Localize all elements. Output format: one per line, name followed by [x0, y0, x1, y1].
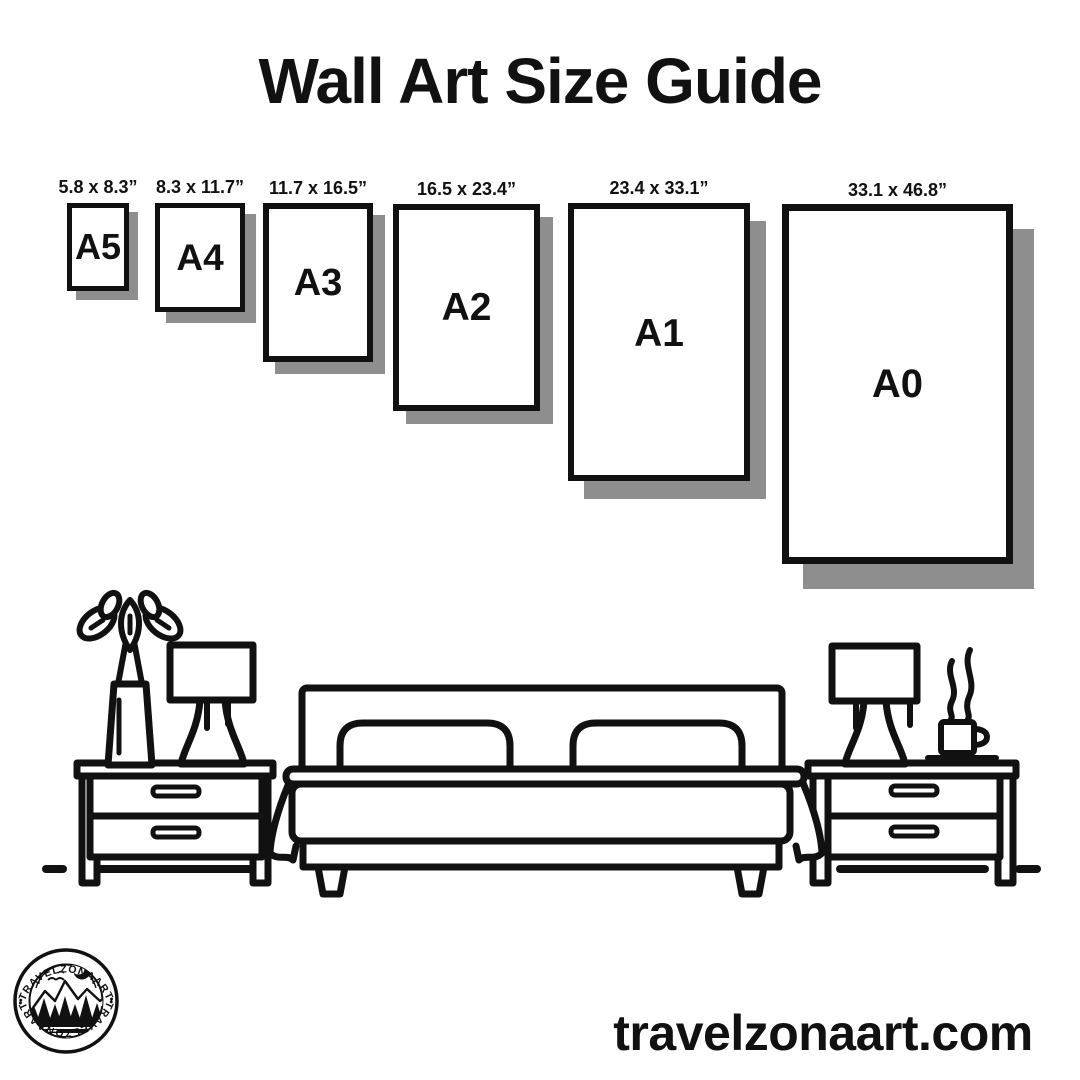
size-dimensions-a3: 11.7 x 16.5” — [269, 178, 367, 199]
size-dimensions-a4: 8.3 x 11.7” — [156, 177, 244, 198]
brand-logo: •TRAVELZONAART• •TRAVELZONAART• — [8, 932, 128, 1070]
size-name-a1: A1 — [634, 314, 684, 353]
size-dimensions-a1: 23.4 x 33.1” — [609, 178, 708, 199]
size-frame-a0: 33.1 x 46.8” A0 — [782, 204, 1013, 564]
size-dimensions-a0: 33.1 x 46.8” — [848, 180, 947, 201]
size-frame-a1: 23.4 x 33.1” A1 — [568, 203, 750, 481]
bed-icon — [270, 688, 822, 894]
size-name-a4: A4 — [176, 239, 223, 276]
size-guide-poster: Wall Art Size Guide 5.8 x 8.3” A5 8.3 x … — [0, 0, 1080, 1080]
size-frame-a4: 8.3 x 11.7” A4 — [155, 203, 245, 312]
size-name-a3: A3 — [294, 264, 343, 302]
size-name-a5: A5 — [75, 229, 121, 265]
size-frame-a3: 11.7 x 16.5” A3 — [263, 203, 373, 362]
size-frame-a5: 5.8 x 8.3” A5 — [67, 203, 129, 291]
bedroom-scene-illustration — [0, 588, 1080, 900]
page-title: Wall Art Size Guide — [0, 44, 1080, 118]
lamp-right-icon — [832, 646, 917, 764]
size-name-a0: A0 — [872, 364, 923, 404]
size-dimensions-a2: 16.5 x 23.4” — [417, 179, 516, 200]
website-text: travelzonaart.com — [613, 1004, 1032, 1062]
coffee-cup-icon — [928, 650, 996, 758]
lamp-left-icon — [170, 645, 253, 764]
size-frame-a2: 16.5 x 23.4” A2 — [393, 204, 540, 411]
size-dimensions-a5: 5.8 x 8.3” — [58, 177, 137, 198]
size-name-a2: A2 — [442, 288, 492, 327]
